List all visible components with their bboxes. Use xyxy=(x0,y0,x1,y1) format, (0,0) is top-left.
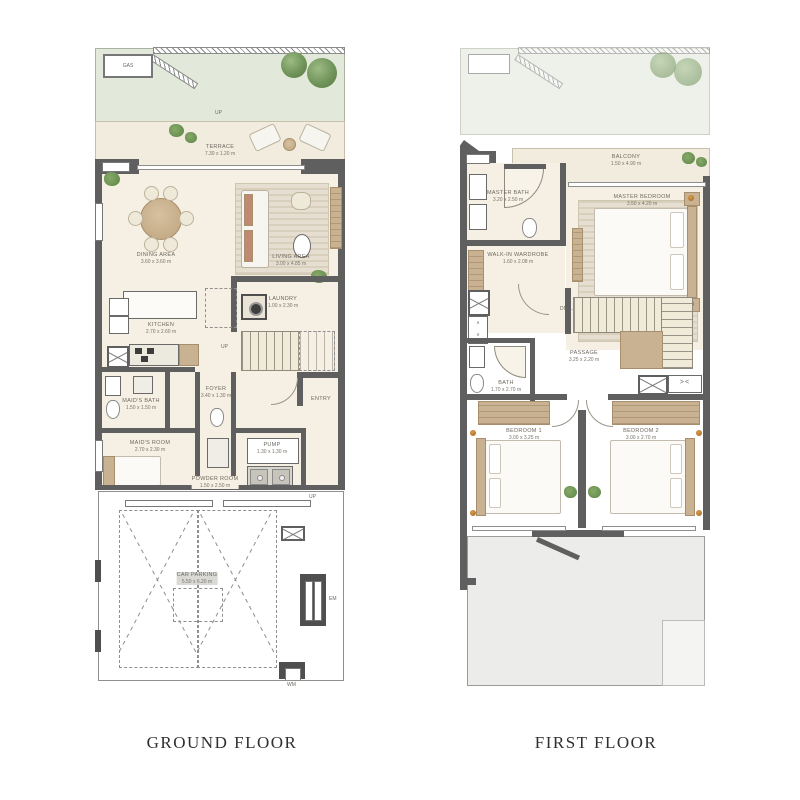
wall xyxy=(236,428,306,433)
tree-icon xyxy=(281,52,307,78)
sofa-cushion xyxy=(244,230,253,262)
outer-wall-left xyxy=(460,146,467,590)
staircase-dashed xyxy=(299,331,335,371)
maids-bath-label: MAID'S BATH 1.50 x 1.50 m xyxy=(122,398,160,411)
first-floor-title: FIRST FLOOR xyxy=(535,733,657,753)
window xyxy=(472,526,566,531)
wall xyxy=(95,367,195,372)
em-cabinet xyxy=(300,574,326,626)
chair xyxy=(179,211,194,226)
wall xyxy=(608,394,710,400)
wall xyxy=(467,338,535,343)
tv-console xyxy=(330,187,342,249)
bathroom-sink xyxy=(469,346,485,368)
bed-headboard xyxy=(476,438,486,516)
up-stairs-label: UP xyxy=(221,344,228,350)
staircase-up xyxy=(241,331,301,371)
side-table xyxy=(283,138,296,151)
counter-wood xyxy=(179,344,199,366)
gas-label: GAS xyxy=(123,63,134,69)
roof-notch xyxy=(662,620,705,686)
chair xyxy=(163,186,178,201)
door-arc xyxy=(552,400,579,427)
plant-icon xyxy=(696,157,707,167)
chair xyxy=(144,186,159,201)
window xyxy=(102,162,130,172)
staircase-upper-flight xyxy=(573,297,663,333)
wall xyxy=(195,372,200,488)
wall-pillar xyxy=(95,560,101,582)
passage-label: PASSAGE 3.25 x 2.20 m xyxy=(569,350,599,363)
meter-box xyxy=(281,526,305,541)
entry-label: ENTRY xyxy=(311,396,331,402)
dining-table xyxy=(140,198,182,240)
wall xyxy=(297,372,345,378)
bed-headboard xyxy=(685,438,695,516)
sofa-cushion xyxy=(244,194,253,226)
stove-burner xyxy=(141,356,148,362)
parking-center-dashed xyxy=(173,588,223,622)
cabinet-x xyxy=(107,346,129,368)
window xyxy=(466,154,490,164)
outer-wall-right xyxy=(703,176,710,530)
powder-shower xyxy=(207,438,229,468)
em-label: EM xyxy=(329,596,337,602)
wall xyxy=(165,372,170,432)
dn-label: DN → xyxy=(560,306,574,312)
pillow xyxy=(670,212,684,248)
bed-headboard xyxy=(103,456,115,486)
maids-room-label: MAID'S ROOM 2.70 x 2.30 m xyxy=(130,440,170,453)
window xyxy=(602,526,696,531)
living-label: LIVING AREA 3.00 x 4.85 m xyxy=(272,254,310,267)
plant-icon xyxy=(564,486,577,498)
wardrobe-bedroom2 xyxy=(612,401,700,425)
toilet xyxy=(106,400,120,419)
toilet xyxy=(210,408,224,427)
door-arc xyxy=(586,400,613,427)
void-dashed xyxy=(205,288,237,328)
balcony-label: BALCONY 1.50 x 4.90 m xyxy=(611,154,641,167)
master-bath-label: MASTER BATH 3.20 x 2.50 m xyxy=(487,190,529,203)
toilet xyxy=(522,218,537,238)
em-slat xyxy=(305,581,313,621)
garage-door xyxy=(223,500,311,507)
pump-label: PUMP 1.30 x 1.30 m xyxy=(257,442,287,455)
bed-headboard xyxy=(687,206,697,298)
linen-closet: >< xyxy=(668,375,702,393)
wardrobe-bedroom1 xyxy=(478,401,550,425)
plant-icon xyxy=(682,152,695,164)
floorplan-canvas: GAS UP TERRACE 7.30 x 1.20 m xyxy=(0,0,800,800)
stair-landing xyxy=(620,331,663,369)
central-wall xyxy=(578,410,586,528)
laundry-label: LAUNDRY 1.00 x 2.30 m xyxy=(268,296,298,309)
kitchen-island xyxy=(123,291,197,319)
toilet xyxy=(470,374,484,393)
wall-pillar xyxy=(95,630,101,652)
plant-icon xyxy=(169,124,184,137)
cabinet-x xyxy=(468,290,490,316)
plant-icon xyxy=(588,486,601,498)
wall xyxy=(95,428,195,433)
wall xyxy=(301,428,306,488)
lamp-icon xyxy=(696,510,702,516)
lamp-icon xyxy=(470,510,476,516)
garage-door xyxy=(125,500,213,507)
em-slat xyxy=(314,581,322,621)
wardrobe-label: WALK-IN WARDROBE 1.60 x 2.08 m xyxy=(487,252,548,265)
chair xyxy=(128,211,143,226)
sliding-door-window xyxy=(137,165,305,170)
vanity-sink xyxy=(469,174,487,200)
pillow xyxy=(489,478,501,508)
vanity-sink xyxy=(469,204,487,230)
up-steps-label: UP xyxy=(215,110,222,116)
bath-label: BATH 1.70 x 2.70 m xyxy=(491,380,521,393)
chair xyxy=(144,237,159,252)
parapet-wall xyxy=(532,530,624,537)
armchair xyxy=(291,192,311,210)
bedroom1-label: BEDROOM 1 3.00 x 3.25 m xyxy=(506,428,542,441)
bench xyxy=(572,228,583,282)
ground-floor-plan: GAS UP TERRACE 7.30 x 1.20 m xyxy=(95,48,345,696)
kitchen-label: KITCHEN 2.70 x 2.60 m xyxy=(146,322,176,335)
lamp-icon xyxy=(470,430,476,436)
wall-return xyxy=(460,578,476,585)
terrace-label: TERRACE 7.30 x 1.20 m xyxy=(205,144,235,157)
pillow xyxy=(489,444,501,474)
shower-fan xyxy=(494,346,526,378)
ground-floor-title: GROUND FLOOR xyxy=(147,733,298,753)
appliance xyxy=(109,316,129,334)
wall xyxy=(297,378,303,406)
wm-door xyxy=(285,668,301,680)
balcony-window xyxy=(568,182,706,187)
master-bedroom-label: MASTER BEDROOM 3.50 x 4.20 m xyxy=(613,194,670,207)
stove-burner xyxy=(147,348,154,354)
pillow xyxy=(670,478,682,508)
stove-burner xyxy=(135,348,142,354)
wm-label: WM xyxy=(287,682,296,688)
plant-icon xyxy=(185,132,197,143)
window xyxy=(95,203,103,241)
shower-tray xyxy=(133,376,153,394)
chair xyxy=(163,237,178,252)
tree-icon xyxy=(307,58,337,88)
wall xyxy=(504,164,546,169)
tree-icon xyxy=(650,52,676,78)
meter-box-faded xyxy=(468,54,510,74)
gas-meter-box: GAS xyxy=(103,54,153,78)
lamp-icon xyxy=(688,195,694,201)
dining-label: DINING AREA 3.60 x 3.60 m xyxy=(137,252,176,265)
plant-icon xyxy=(104,172,120,186)
bathroom-sink xyxy=(105,376,121,396)
lamp-icon xyxy=(696,430,702,436)
tree-icon xyxy=(674,58,702,86)
wall xyxy=(231,276,338,282)
pillow xyxy=(670,254,684,290)
staircase-lower-flight xyxy=(661,297,693,369)
first-floor-plan: BALCONY 1.50 x 4.90 m MASTER BATH 3.20 x… xyxy=(460,48,710,696)
car-parking-label: CAR PARKING 5.50 x 6.20 m xyxy=(177,572,218,585)
pillow xyxy=(670,444,682,474)
powder-label: POWDER ROOM 1.50 x 2.50 m xyxy=(192,476,239,489)
window xyxy=(95,440,103,472)
up-parking-label: UP xyxy=(309,494,316,500)
bedroom2-label: BEDROOM 2 3.00 x 2.70 m xyxy=(623,428,659,441)
fence-hatch xyxy=(518,47,710,54)
fridge xyxy=(109,298,129,316)
ac-closet xyxy=(638,375,668,395)
foyer-label: FOYER 3.40 x 1.30 m xyxy=(201,386,231,399)
washing-machine-icon xyxy=(241,294,267,320)
fence-hatch xyxy=(153,47,345,54)
